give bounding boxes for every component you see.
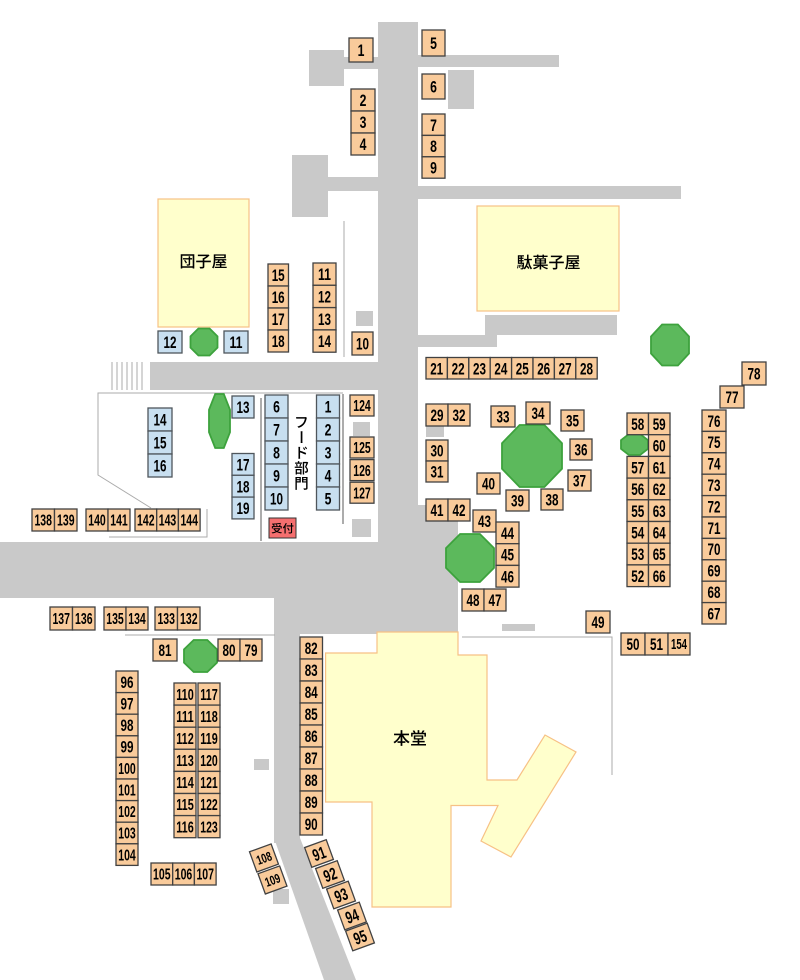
svg-text:77: 77 — [726, 388, 739, 407]
svg-text:66: 66 — [653, 567, 666, 586]
svg-text:84: 84 — [305, 683, 318, 702]
svg-text:24: 24 — [494, 359, 507, 378]
svg-text:28: 28 — [580, 359, 593, 378]
svg-text:31: 31 — [431, 463, 444, 482]
svg-text:23: 23 — [473, 359, 486, 378]
svg-text:143: 143 — [159, 513, 177, 530]
svg-text:122: 122 — [200, 797, 218, 814]
svg-text:17: 17 — [272, 310, 285, 329]
svg-text:121: 121 — [200, 775, 218, 792]
svg-text:86: 86 — [305, 727, 318, 746]
svg-text:89: 89 — [305, 793, 318, 812]
svg-text:34: 34 — [532, 404, 545, 423]
svg-text:78: 78 — [748, 365, 761, 384]
svg-text:97: 97 — [121, 695, 134, 714]
svg-text:3: 3 — [360, 113, 367, 132]
svg-text:37: 37 — [573, 472, 586, 491]
svg-text:7: 7 — [273, 421, 280, 440]
svg-text:2: 2 — [360, 91, 367, 110]
svg-text:64: 64 — [653, 524, 666, 543]
svg-text:69: 69 — [708, 562, 721, 581]
svg-text:72: 72 — [708, 497, 721, 516]
svg-text:123: 123 — [200, 819, 218, 836]
svg-text:36: 36 — [575, 441, 588, 460]
svg-text:132: 132 — [180, 611, 198, 628]
svg-text:144: 144 — [180, 513, 198, 530]
svg-text:124: 124 — [353, 398, 371, 415]
svg-text:50: 50 — [627, 635, 640, 654]
svg-text:2: 2 — [325, 421, 332, 440]
svg-text:15: 15 — [154, 434, 167, 453]
svg-text:103: 103 — [118, 826, 136, 843]
svg-text:102: 102 — [118, 804, 136, 821]
svg-text:14: 14 — [154, 411, 167, 430]
svg-text:117: 117 — [200, 687, 218, 704]
svg-text:1: 1 — [325, 398, 332, 417]
svg-text:18: 18 — [272, 332, 285, 351]
svg-text:120: 120 — [200, 753, 218, 770]
svg-text:83: 83 — [305, 661, 318, 680]
svg-text:4: 4 — [325, 467, 332, 486]
svg-text:5: 5 — [325, 490, 332, 509]
svg-text:85: 85 — [305, 705, 318, 724]
svg-text:12: 12 — [164, 333, 177, 352]
svg-text:119: 119 — [200, 731, 218, 748]
svg-text:111: 111 — [176, 709, 194, 726]
svg-text:16: 16 — [154, 457, 167, 476]
svg-text:8: 8 — [430, 137, 437, 156]
svg-text:30: 30 — [431, 442, 444, 461]
svg-text:8: 8 — [273, 444, 280, 463]
svg-text:21: 21 — [430, 359, 443, 378]
svg-text:73: 73 — [708, 476, 721, 495]
svg-text:99: 99 — [121, 738, 134, 757]
svg-text:26: 26 — [537, 359, 550, 378]
svg-text:29: 29 — [431, 406, 444, 425]
svg-text:47: 47 — [489, 591, 502, 610]
svg-text:125: 125 — [353, 440, 371, 457]
svg-text:45: 45 — [501, 546, 514, 565]
svg-text:80: 80 — [223, 641, 236, 660]
svg-text:25: 25 — [516, 359, 529, 378]
svg-text:106: 106 — [175, 867, 193, 884]
svg-text:60: 60 — [653, 437, 666, 456]
svg-text:43: 43 — [478, 512, 491, 531]
svg-text:4: 4 — [360, 135, 367, 154]
svg-text:75: 75 — [708, 433, 721, 452]
svg-text:126: 126 — [353, 463, 371, 480]
svg-text:32: 32 — [453, 406, 466, 425]
svg-text:13: 13 — [318, 310, 331, 329]
svg-text:113: 113 — [176, 753, 194, 770]
svg-text:22: 22 — [452, 359, 465, 378]
svg-text:33: 33 — [497, 408, 510, 427]
svg-text:96: 96 — [121, 673, 134, 692]
svg-text:46: 46 — [501, 567, 514, 586]
svg-text:6: 6 — [430, 78, 437, 97]
svg-text:56: 56 — [631, 480, 644, 499]
svg-text:141: 141 — [110, 513, 128, 530]
svg-text:16: 16 — [272, 288, 285, 307]
svg-text:107: 107 — [196, 867, 214, 884]
svg-text:115: 115 — [176, 797, 194, 814]
svg-text:65: 65 — [653, 545, 666, 564]
svg-text:63: 63 — [653, 502, 666, 521]
svg-text:11: 11 — [230, 333, 243, 352]
svg-text:118: 118 — [200, 709, 218, 726]
svg-text:5: 5 — [430, 34, 437, 53]
svg-text:79: 79 — [245, 641, 258, 660]
svg-text:52: 52 — [631, 567, 644, 586]
svg-text:54: 54 — [631, 524, 644, 543]
svg-text:101: 101 — [118, 783, 136, 800]
svg-text:14: 14 — [318, 332, 331, 351]
svg-text:41: 41 — [431, 501, 444, 520]
svg-text:82: 82 — [305, 639, 318, 658]
svg-text:42: 42 — [453, 501, 466, 520]
svg-text:9: 9 — [273, 467, 280, 486]
svg-text:3: 3 — [325, 444, 332, 463]
svg-text:87: 87 — [305, 749, 318, 768]
svg-text:88: 88 — [305, 771, 318, 790]
svg-text:58: 58 — [631, 415, 644, 434]
svg-text:48: 48 — [467, 591, 480, 610]
svg-text:140: 140 — [88, 513, 106, 530]
svg-text:70: 70 — [708, 540, 721, 559]
svg-text:90: 90 — [305, 815, 318, 834]
svg-text:19: 19 — [237, 499, 250, 518]
svg-text:55: 55 — [631, 502, 644, 521]
svg-text:13: 13 — [237, 398, 250, 417]
svg-text:10: 10 — [270, 490, 283, 509]
svg-text:134: 134 — [128, 611, 146, 628]
svg-text:61: 61 — [653, 458, 666, 477]
svg-text:1: 1 — [358, 41, 365, 60]
svg-text:136: 136 — [75, 611, 93, 628]
svg-text:110: 110 — [176, 687, 194, 704]
svg-text:39: 39 — [511, 492, 524, 511]
svg-text:35: 35 — [566, 412, 579, 431]
svg-text:7: 7 — [430, 116, 437, 135]
svg-text:100: 100 — [118, 761, 136, 778]
svg-text:62: 62 — [653, 480, 666, 499]
svg-text:59: 59 — [653, 415, 666, 434]
svg-text:133: 133 — [157, 611, 175, 628]
svg-text:138: 138 — [34, 513, 52, 530]
svg-text:27: 27 — [559, 359, 572, 378]
svg-text:10: 10 — [356, 335, 369, 354]
svg-text:154: 154 — [671, 637, 687, 653]
svg-text:137: 137 — [52, 611, 70, 628]
svg-text:17: 17 — [237, 456, 250, 475]
svg-text:57: 57 — [631, 458, 644, 477]
svg-text:67: 67 — [708, 604, 721, 623]
svg-text:139: 139 — [57, 513, 75, 530]
svg-text:81: 81 — [159, 641, 172, 660]
svg-text:74: 74 — [708, 455, 721, 474]
svg-text:104: 104 — [118, 847, 136, 864]
svg-text:116: 116 — [176, 819, 194, 836]
svg-text:76: 76 — [708, 412, 721, 431]
svg-text:11: 11 — [318, 265, 331, 284]
svg-text:142: 142 — [137, 513, 155, 530]
svg-text:114: 114 — [176, 775, 194, 792]
svg-text:68: 68 — [708, 583, 721, 602]
svg-text:51: 51 — [650, 635, 663, 654]
svg-text:71: 71 — [708, 519, 721, 538]
svg-text:98: 98 — [121, 716, 134, 735]
svg-text:9: 9 — [430, 159, 437, 178]
svg-text:112: 112 — [176, 731, 194, 748]
svg-text:12: 12 — [318, 288, 331, 307]
svg-text:15: 15 — [272, 266, 285, 285]
svg-text:53: 53 — [631, 545, 644, 564]
svg-text:105: 105 — [153, 867, 171, 884]
svg-text:6: 6 — [273, 398, 280, 417]
svg-text:135: 135 — [106, 611, 124, 628]
svg-text:40: 40 — [482, 475, 495, 494]
svg-text:49: 49 — [592, 613, 605, 632]
svg-text:127: 127 — [353, 485, 371, 502]
svg-text:38: 38 — [546, 491, 559, 510]
svg-text:18: 18 — [237, 477, 250, 496]
svg-text:44: 44 — [501, 524, 514, 543]
